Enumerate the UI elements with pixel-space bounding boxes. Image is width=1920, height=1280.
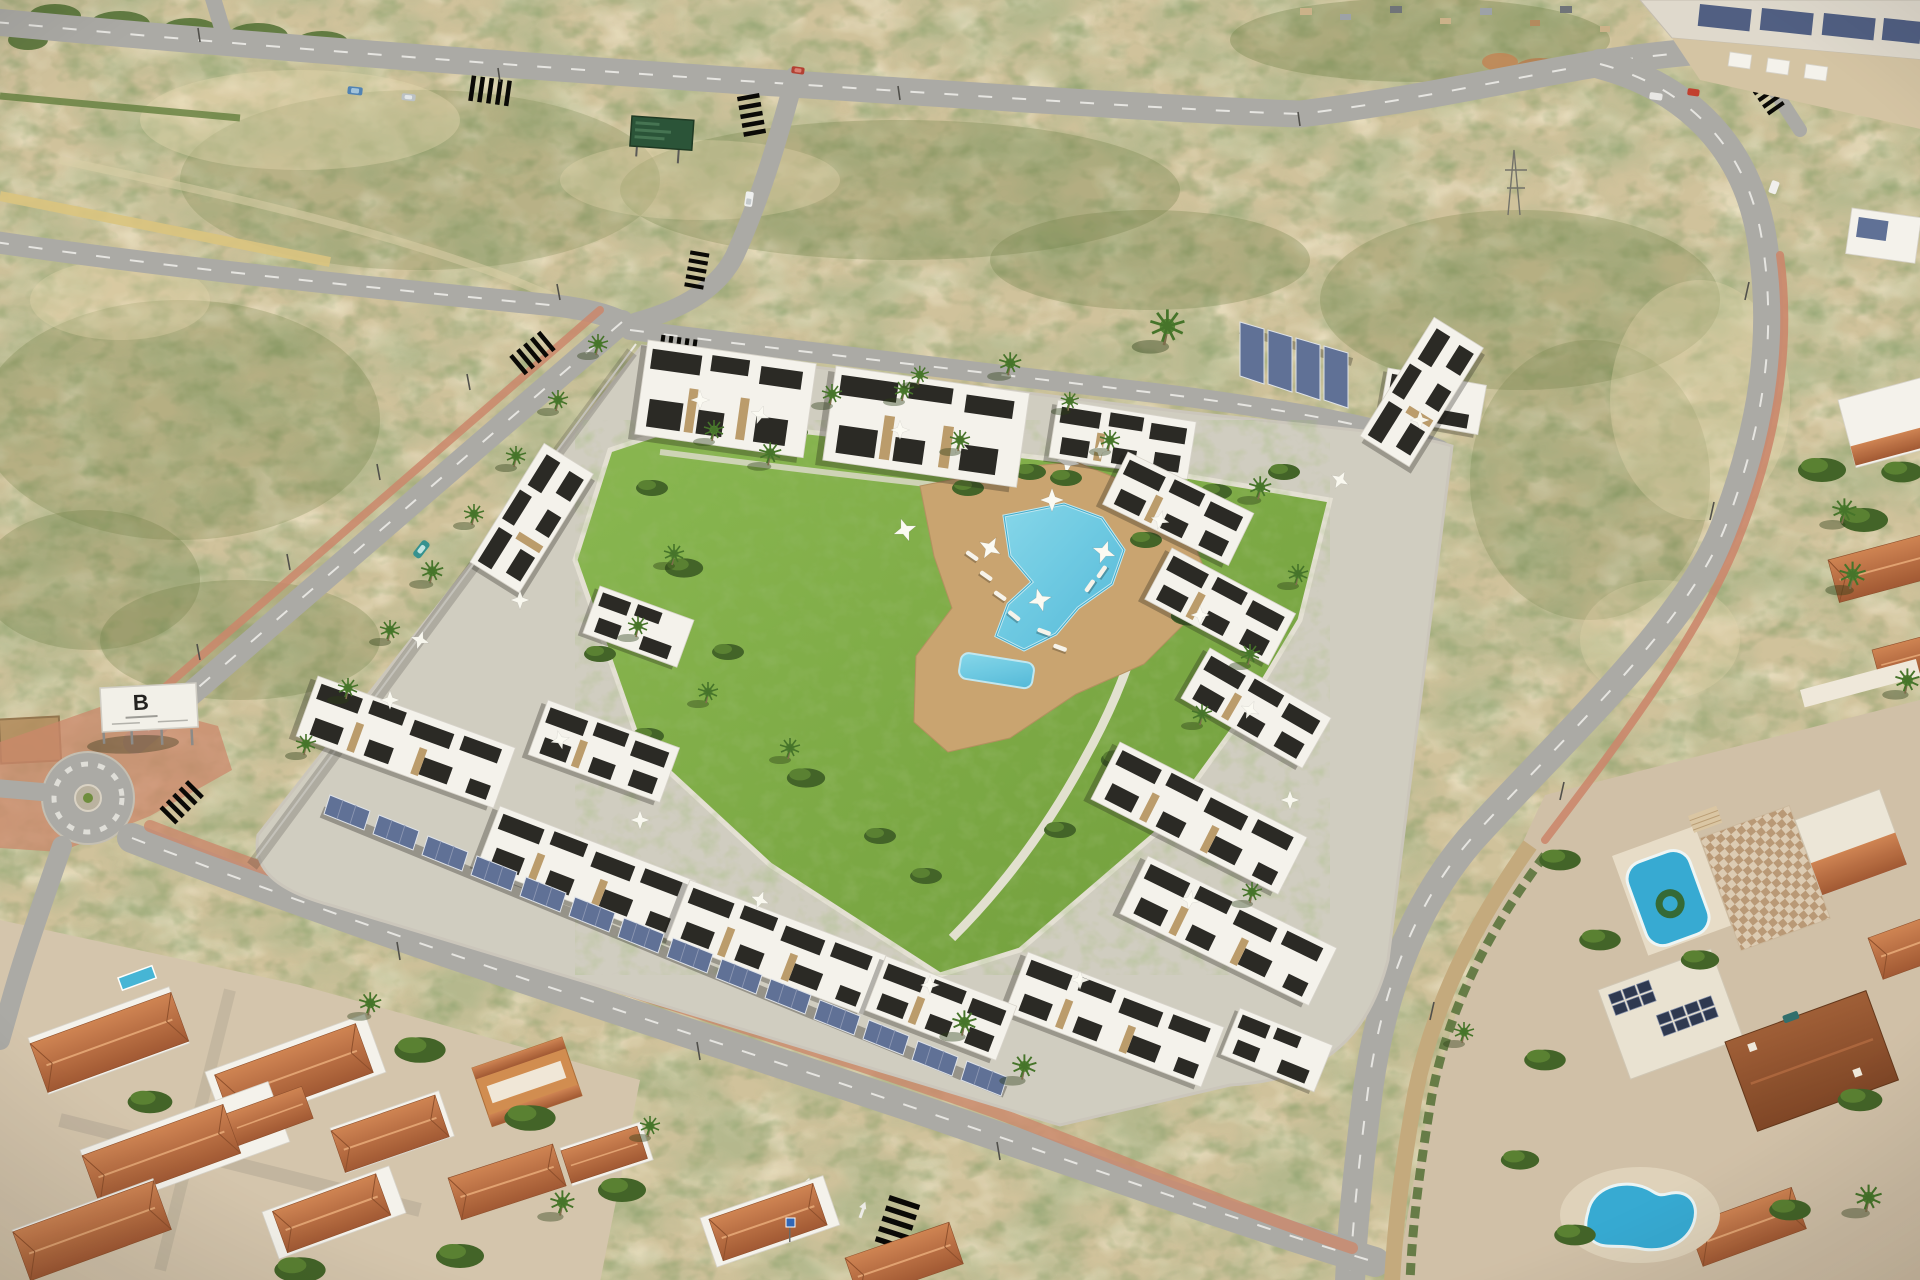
aerial-scene: B [0, 0, 1920, 1280]
aerial-render-of-residential-development: B [0, 0, 1920, 1280]
warm-light [0, 0, 1920, 1280]
